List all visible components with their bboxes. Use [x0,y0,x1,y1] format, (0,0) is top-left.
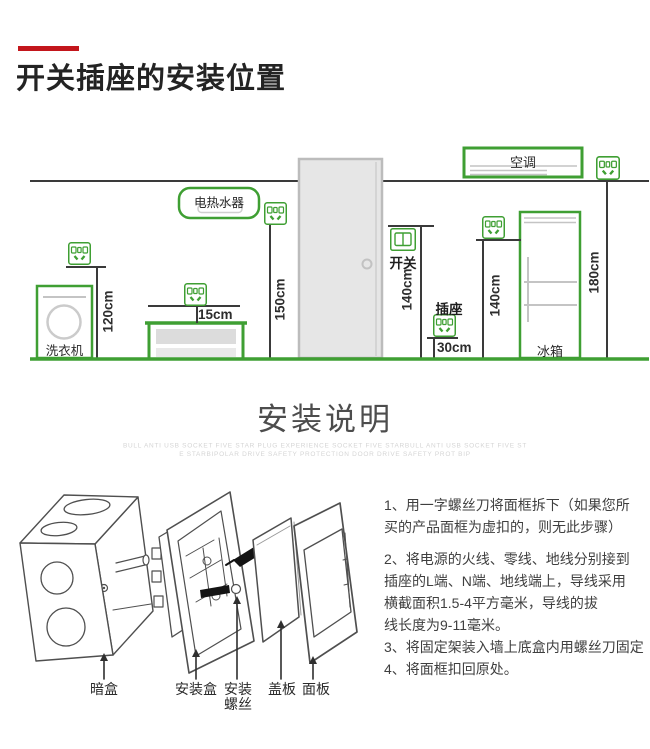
step-line: 1、用一字螺丝刀将面框拆下（如果您所 [384,494,650,516]
part-label-panel: 面板 [290,682,342,697]
step-line: 3、将固定架装入墙上底盒内用螺丝刀固定 [384,636,650,658]
install-section-heading: 安装说明 [0,394,650,439]
power-socket-icon [264,202,287,225]
power-socket-icon [596,156,620,180]
socket-label: 插座 [431,298,467,318]
light-switch-icon [390,228,416,251]
fridge [520,212,580,358]
tv-cabinet [145,323,247,358]
water-heater-label: 电热水器 [183,192,255,211]
fridge-label: 冰箱 [526,341,574,360]
mounting-box-drawing [152,492,261,673]
air-conditioner-label: 空调 [489,152,557,171]
junction-box-drawing [20,495,153,661]
installation-steps: 1、用一字螺丝刀将面框拆下（如果您所 买的产品面框为虚扣的，则无此步骤） 2、将… [384,494,650,680]
step-line: 2、将电源的火线、零线、地线分别接到 [384,548,650,570]
door [299,159,382,358]
step-line: 线长度为9-11毫米。 [384,614,650,636]
height-label-ac-socket: 180cm [587,250,602,296]
height-label-low-socket: 30cm [437,340,479,355]
watermark-text: BULL ANTI USB SOCKET FIVE STAR PLUG EXPE… [91,441,559,458]
power-socket-icon [482,216,505,239]
step-line: 插座的L端、N端、地线端上，导线采用 [384,570,650,592]
cover-plate-drawing [253,518,301,642]
height-label-water-heater-socket: 150cm [273,277,288,323]
step-line: 买的产品面框为虚扣的，则无此步骤） [384,516,650,538]
height-label-counter-socket: 15cm [198,307,240,322]
exploded-view [20,492,357,679]
height-label-fridge-socket: 140cm [488,273,503,319]
step-line: 横截面积1.5-4平方毫米，导线的拔 [384,592,650,614]
part-label-junction-box: 暗盒 [77,682,131,697]
washer-label: 洗衣机 [38,340,91,359]
step-line: 4、将面框扣回原处。 [384,658,650,680]
height-label-washer-socket: 120cm [101,289,116,335]
watermark-line-1: BULL ANTI USB SOCKET FIVE STAR PLUG EXPE… [91,441,559,450]
panel-drawing [294,503,357,663]
watermark-line-2: E STARBIPOLAR DRIVE SAFETY PROTECTION DO… [91,450,559,459]
power-socket-icon [68,242,91,265]
power-socket-icon [184,283,207,306]
height-label-switch: 140cm [400,267,415,313]
product-detail-page: 开关插座的安装位置 [0,0,650,749]
